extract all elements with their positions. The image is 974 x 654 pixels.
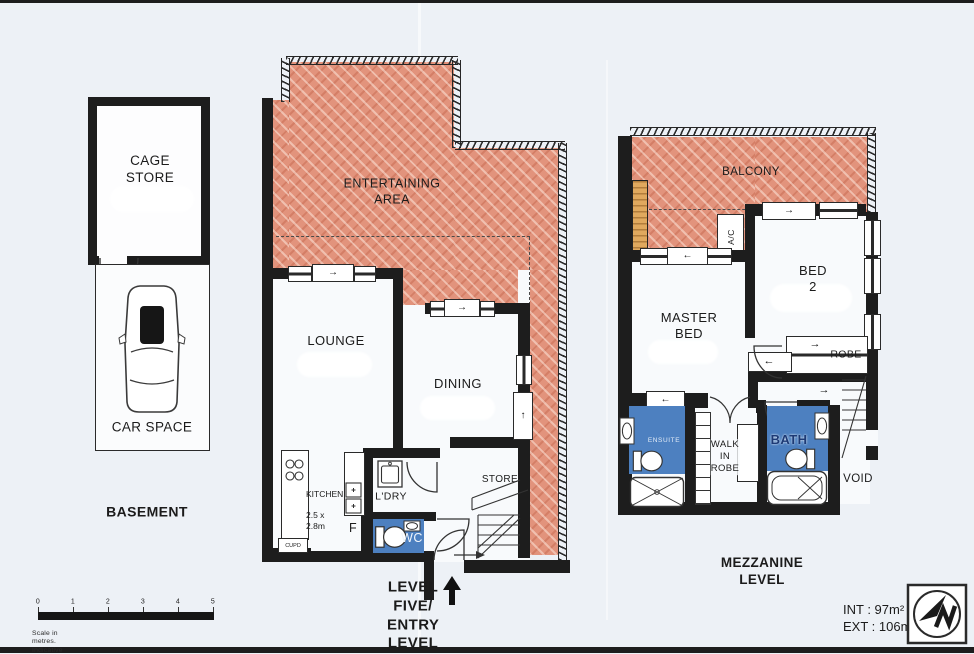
arrow-glyph: → [819, 385, 830, 396]
external-area: EXT : 106m² [843, 619, 916, 635]
floor-plan-page: CAGE STORE CAR SPACE BASEMENT ENTERT [0, 0, 974, 654]
basin-icon [403, 520, 421, 532]
window [516, 355, 532, 385]
basin-icon [619, 417, 635, 445]
room-label-robe: ROBE [830, 348, 861, 361]
ac-label: A/C [725, 229, 735, 245]
mezzanine-title: MEZZANINE LEVEL [721, 555, 803, 589]
entry-arrow-icon [443, 576, 461, 606]
basement-plan: CAGE STORE CAR SPACE BASEMENT [0, 0, 260, 654]
wir-robe-unit [737, 424, 759, 482]
entertaining-terrace [530, 270, 558, 555]
room-label-cage-store: CAGE STORE [126, 153, 174, 187]
entertaining-terrace [454, 148, 558, 270]
window [640, 248, 668, 265]
arrow-glyph: → [810, 339, 821, 350]
basement-title: BASEMENT [106, 503, 188, 521]
wall [361, 512, 373, 555]
erased-area [110, 186, 194, 212]
room-label-master-bed: MASTER BED [661, 310, 718, 343]
room-label-walk-in-robe: WALK IN ROBE [711, 439, 740, 475]
room-label-ensuite: ENSUITE [648, 437, 680, 445]
room-label-void: VOID [843, 472, 873, 486]
kitchen-label: KITCHEN [306, 489, 343, 499]
balcony-edge [630, 127, 876, 136]
internal-area: INT : 97m² [843, 602, 904, 618]
door-arc-icon [752, 344, 784, 380]
toilet-icon [632, 448, 664, 474]
laundry-tub-icon [377, 460, 403, 488]
cooktop-icon [283, 456, 305, 488]
fridge-label: F [349, 521, 357, 537]
erased-area [648, 340, 718, 364]
room-label-car-space: CAR SPACE [112, 420, 193, 437]
balcony-edge [867, 133, 876, 212]
basin-icon [814, 412, 830, 440]
window [864, 220, 881, 256]
erased-area [420, 396, 495, 420]
entertaining-terrace [273, 100, 289, 270]
sliding-door: ↑ [513, 392, 533, 440]
terrace-edge [286, 56, 458, 65]
window [354, 266, 376, 282]
entry-level-title: LEVEL FIVE/ ENTRY LEVEL [387, 579, 439, 654]
sliding-door-arrow-icon: → [457, 303, 467, 313]
room-label-bed2: BED 2 [799, 263, 827, 296]
wir-shelving [695, 412, 711, 505]
door-arc-icon [405, 460, 441, 496]
erased-area [297, 352, 372, 377]
scan-fold-line [606, 60, 608, 620]
scale-caption: Scale in metres. Indicative only. Dimens… [32, 630, 74, 654]
wall [745, 204, 755, 338]
wall [363, 448, 440, 458]
window [707, 248, 732, 265]
room-label-wc: WC [401, 531, 423, 547]
room-label-entertaining: ENTERTAINING AREA [344, 176, 441, 207]
terrace-edge [281, 58, 290, 102]
wall [262, 98, 273, 562]
room-label-lounge: LOUNGE [307, 333, 364, 349]
stairs-arrow-icon: → [810, 383, 838, 397]
toilet-icon [784, 446, 816, 472]
stairs-icon [840, 372, 868, 460]
room-label-kitchen: KITCHEN 2.5 x 2.8m [306, 478, 343, 531]
sliding-door: ← [667, 247, 708, 265]
terrace-dashed-line [276, 236, 530, 239]
bathtub-icon [766, 470, 828, 506]
sliding-door-arrow-icon: ↑ [521, 411, 526, 421]
cupboard-label: CUPD [285, 543, 301, 549]
sliding-door-arrow-icon: ← [661, 395, 671, 405]
kitchen-sink-icon [345, 482, 362, 514]
sliding-door: → [762, 202, 816, 220]
wall [450, 437, 518, 448]
room-label-balcony: BALCONY [722, 165, 780, 179]
cupboard: CUPD [278, 538, 308, 553]
shower-icon [629, 476, 685, 508]
entry-door-arc-icon [431, 527, 467, 563]
wall [685, 405, 695, 505]
window [288, 266, 312, 282]
sliding-door-arrow-icon: → [784, 206, 794, 216]
wall [393, 268, 403, 455]
room-label-laundry: L'DRY [375, 490, 407, 503]
balcony-dashed-line [649, 209, 755, 212]
window [480, 301, 495, 317]
car-icon [116, 282, 188, 416]
window [819, 202, 858, 219]
double-door-icon [708, 395, 752, 425]
balcony-screen [632, 180, 648, 258]
room-label-dining: DINING [434, 376, 482, 392]
s liding-door: → [312, 264, 354, 282]
window [864, 258, 881, 294]
sliding-door: → [444, 299, 480, 317]
terrace-edge [452, 60, 461, 148]
terrace-edge [558, 143, 567, 560]
sliding-door-arrow-icon: → [328, 268, 338, 278]
window [430, 301, 445, 317]
kitchen-dimensions: 2.5 x 2.8m [306, 510, 325, 531]
sliding-door-arrow-icon: ← [683, 251, 693, 261]
terrace-edge [455, 141, 565, 150]
north-arrow-icon [906, 583, 968, 645]
scale-bar-rule [38, 612, 214, 620]
terrace-dashed-line [529, 237, 532, 305]
